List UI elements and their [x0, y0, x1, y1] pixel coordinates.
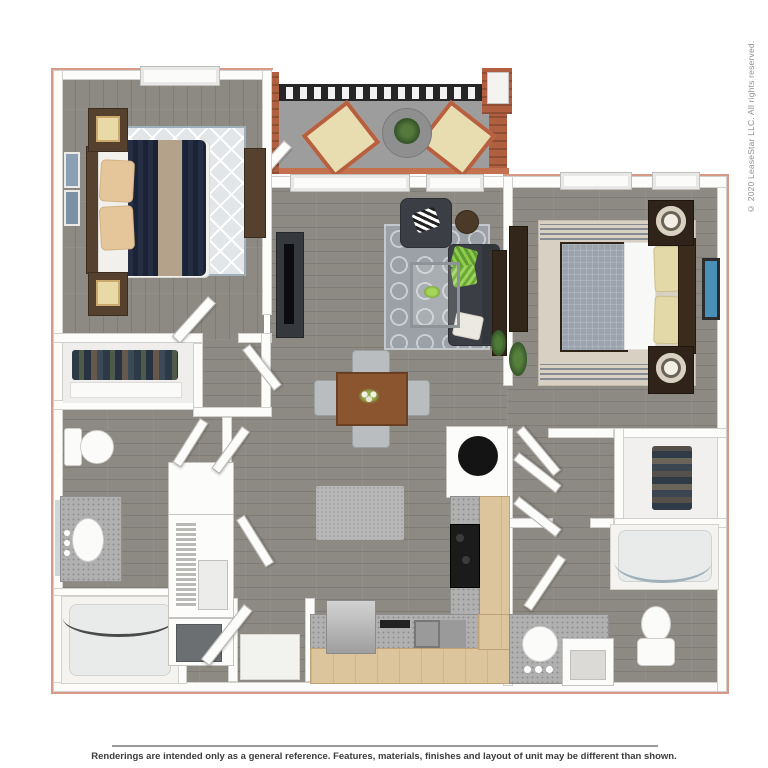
tv-screen	[284, 244, 294, 324]
bedroom2-window-1	[560, 172, 632, 190]
bedroom1-art-2	[64, 190, 80, 226]
entry-mat	[240, 634, 300, 680]
console-plant	[491, 330, 506, 356]
toilet2-tank	[637, 638, 675, 666]
closet1-shelf	[70, 382, 182, 398]
bath2-candles	[524, 666, 531, 673]
wall-closet2-left	[614, 428, 624, 528]
wall-closet2-top	[614, 428, 727, 438]
copyright-text: © 2020 LeaseStar LLC. All rights reserve…	[746, 14, 762, 214]
bed1-runner	[158, 140, 182, 276]
bathtub2-shower-rod	[614, 540, 712, 583]
bath1-sink	[72, 518, 104, 562]
laundry-washer	[198, 560, 228, 610]
balcony-plant	[394, 118, 420, 144]
closet1-clothes	[72, 350, 178, 380]
stove	[450, 524, 480, 588]
wall-tub1-top	[53, 588, 185, 596]
living-slider-window	[290, 174, 410, 192]
toilet2-bowl	[641, 606, 671, 642]
bedroom2-console	[509, 226, 528, 332]
wall-hall-mid	[193, 407, 272, 417]
floor-plan-rendering: © 2020 LeaseStar LLC. All rights reserve…	[0, 0, 768, 768]
dining-centerpiece	[358, 388, 380, 404]
bathtub1-shower-rod	[63, 600, 175, 637]
lamp1-bottom	[96, 280, 120, 306]
bedroom1-art-1	[64, 152, 80, 188]
bed1-pillow-2	[99, 205, 135, 251]
refrigerator	[326, 600, 376, 654]
bedroom2-plant	[509, 342, 527, 376]
living-window	[426, 174, 484, 192]
wall-bedroom2-bottom	[548, 428, 614, 438]
bedroom2-window-2	[652, 172, 700, 190]
bed1-pillow-1	[99, 159, 135, 203]
coffee-table-decor	[424, 286, 440, 298]
wall-closet1-right	[193, 343, 203, 410]
lamp2-bottom	[656, 353, 686, 383]
outline-right	[727, 174, 729, 694]
hall-cabinet	[168, 462, 234, 516]
water-heater	[458, 436, 498, 476]
stove-burners	[456, 534, 464, 542]
lamp2-top	[656, 206, 686, 236]
closet2-clothes	[652, 446, 692, 510]
lamp1-top	[96, 116, 120, 142]
bedroom1-dresser	[244, 148, 266, 238]
bath2-cabinet-shelf	[570, 650, 606, 680]
bath1-faucet	[64, 530, 70, 536]
footer-divider	[112, 745, 658, 747]
laundry-wire-shelves	[176, 522, 196, 608]
countertop-appliance	[380, 620, 410, 628]
bed2-mattress	[560, 242, 628, 352]
balcony-chimney-cap	[487, 72, 509, 104]
kitchen-cabinet-corner	[478, 614, 510, 650]
area-rug	[316, 486, 404, 540]
bed2-sheet	[624, 242, 656, 350]
bedroom2-art	[702, 258, 720, 320]
side-table	[455, 210, 479, 234]
bedroom1-window	[140, 66, 220, 86]
bed2-pillow-2	[653, 296, 681, 345]
toilet1-bowl	[80, 430, 114, 464]
bed2-pillow-1	[653, 246, 681, 293]
outline-bottom	[51, 692, 729, 694]
disclaimer-text: Renderings are intended only as a genera…	[0, 751, 768, 762]
bed2-headboard	[678, 238, 696, 354]
bath2-sink	[522, 626, 558, 662]
balcony-railing	[279, 84, 507, 101]
kitchen-sink	[414, 620, 440, 648]
